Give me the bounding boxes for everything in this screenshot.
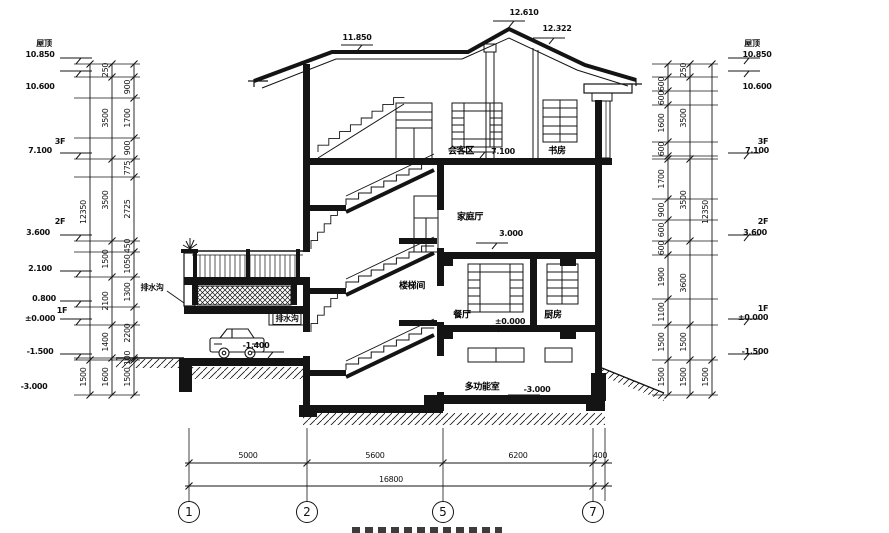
cutoff-caption <box>352 527 502 533</box>
ground-hatch <box>116 358 664 425</box>
terrace-pillar <box>183 238 197 306</box>
car <box>210 329 264 358</box>
building-section-art <box>0 0 889 533</box>
section-drawing-canvas: 屋顶10.85010.6003F7.1002F3.6002.1000.8001F… <box>0 0 889 533</box>
dimension-scaffold <box>60 21 760 501</box>
planting-box <box>192 284 297 305</box>
stairs <box>200 98 434 377</box>
